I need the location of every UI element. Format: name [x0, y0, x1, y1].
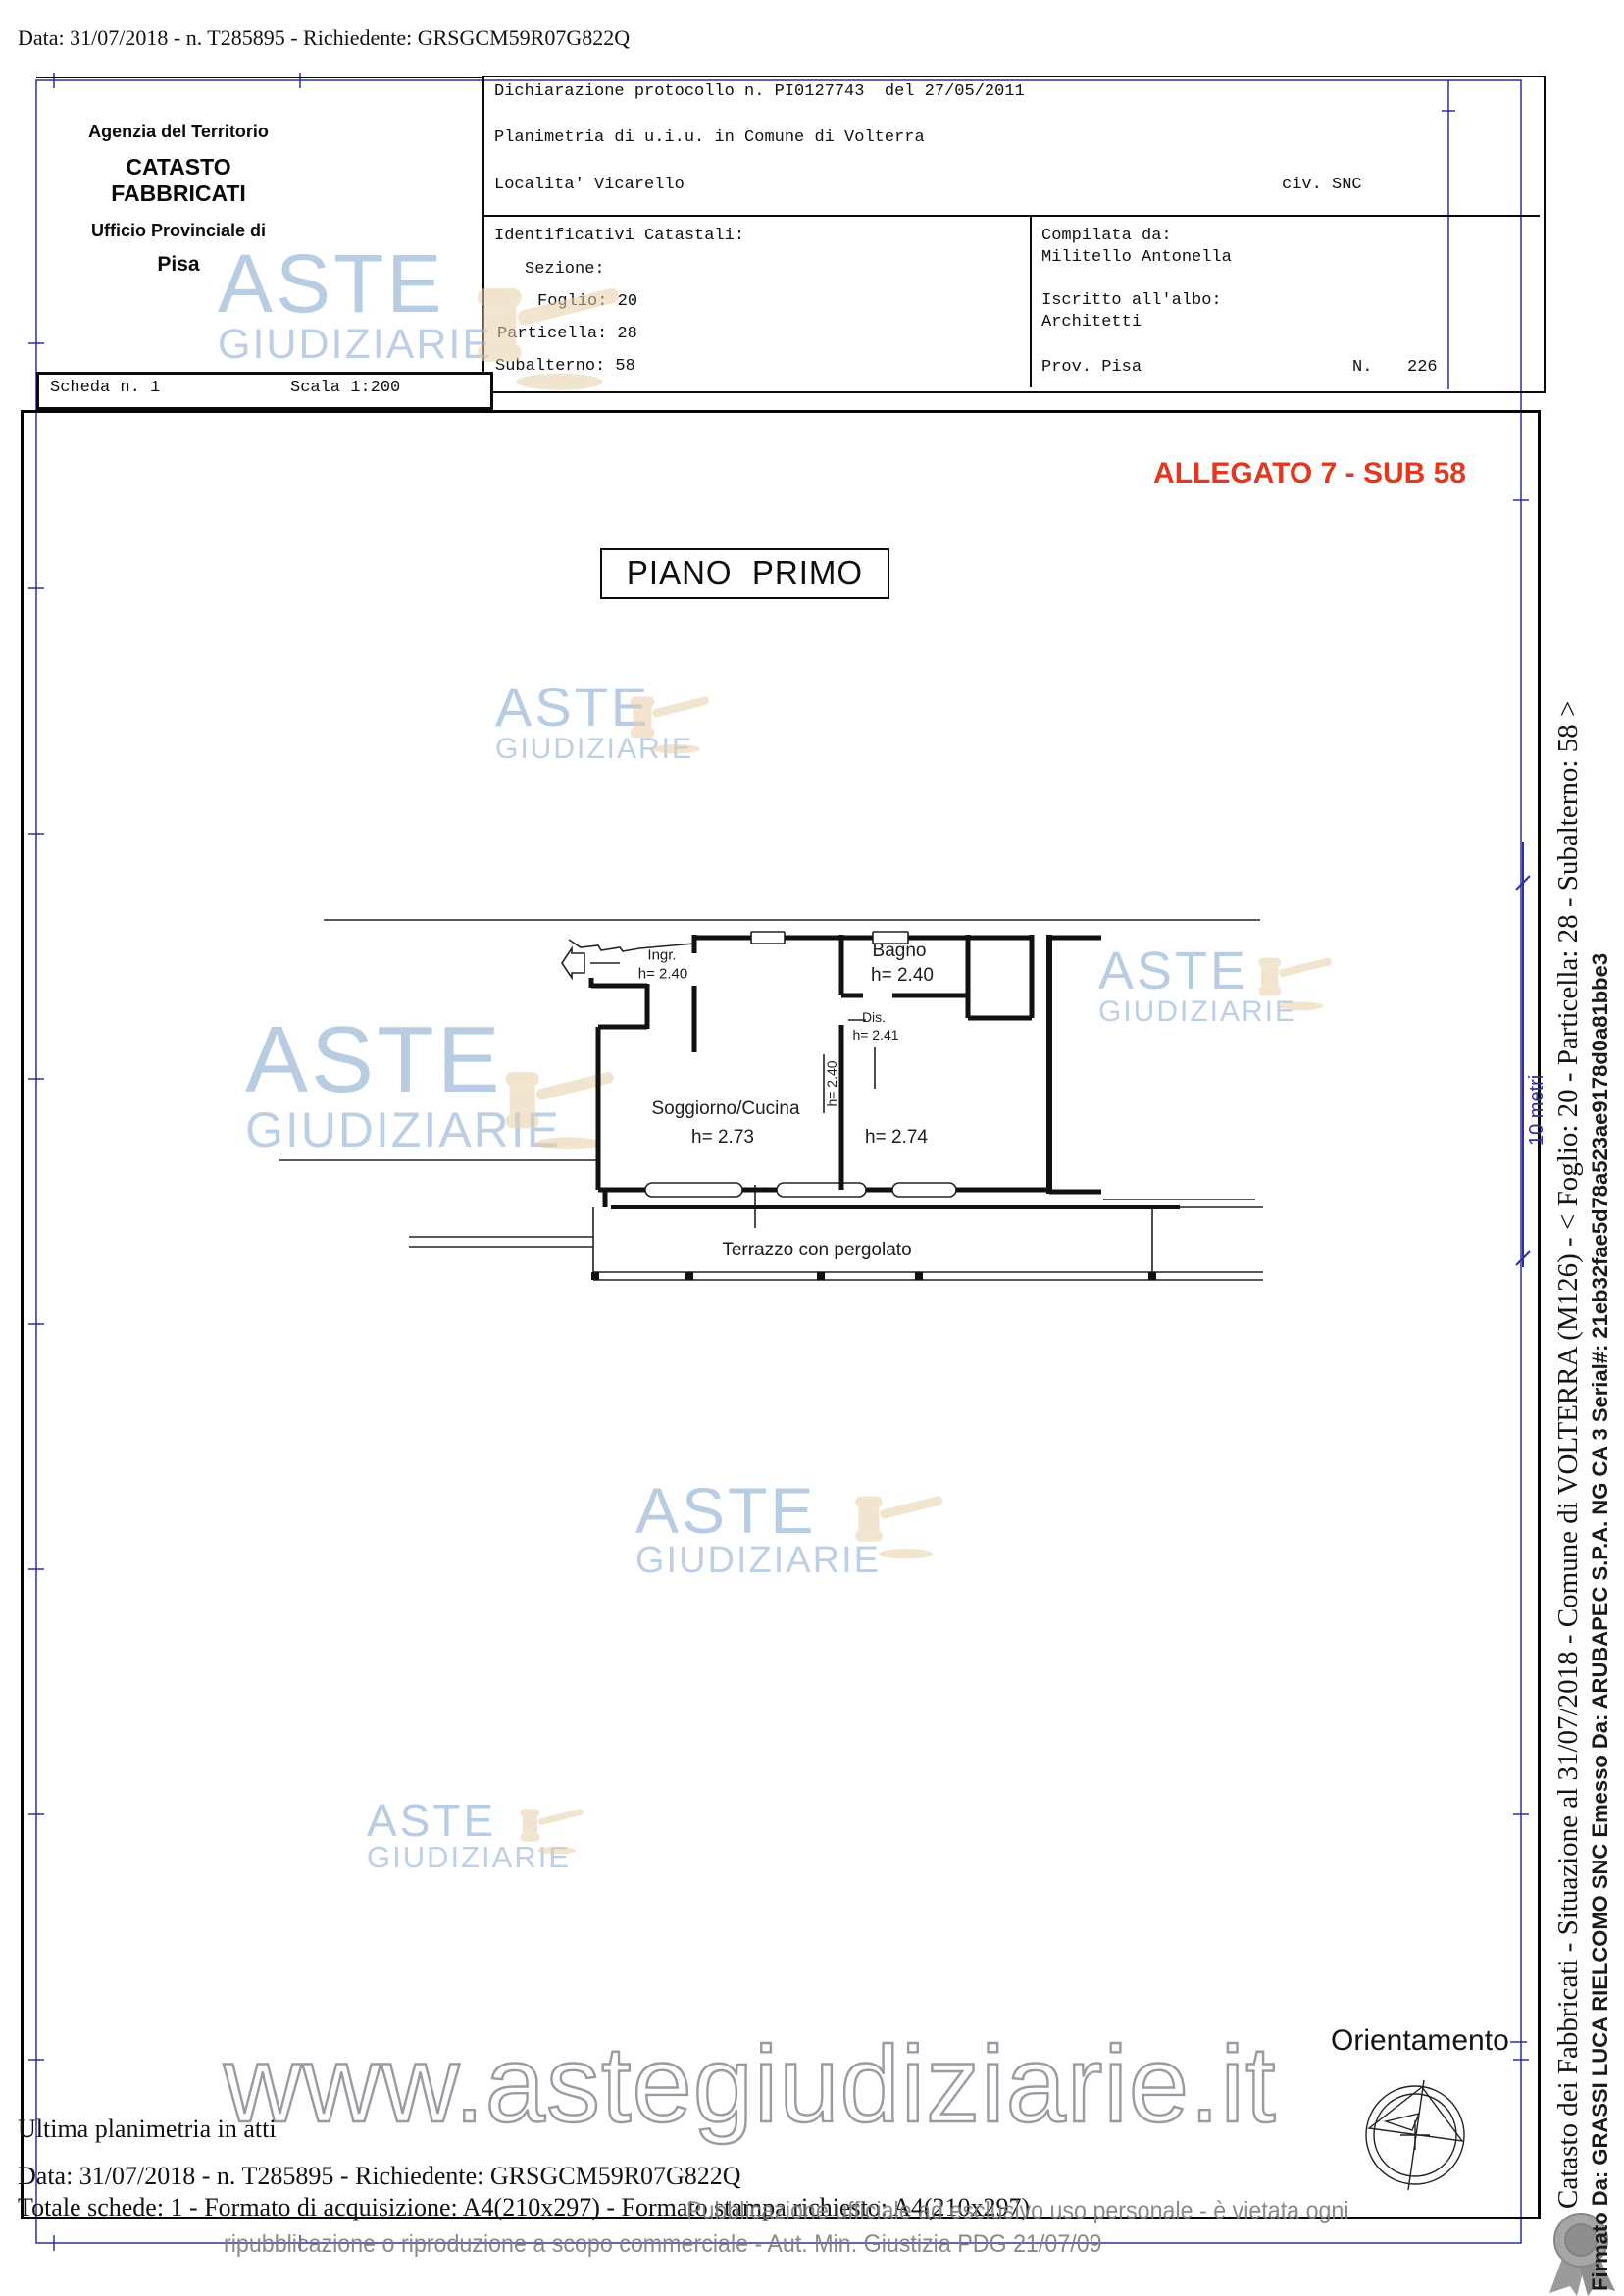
agency-box: Agenzia del Territorio CATASTO FABBRICAT… [36, 77, 482, 373]
scale-bar-label: 10 metri [1526, 1075, 1548, 1146]
room-height-hall: h= 2.40 [824, 1060, 839, 1106]
room-height-ingr: h= 2.40 [638, 966, 687, 983]
compiled-by-label: Compilata da: [1041, 227, 1172, 245]
pergola-posts [591, 1272, 1156, 1280]
agency-line-3: Ufficio Provinciale di [56, 221, 301, 241]
footer-line-1: Ultima planimetria in atti [18, 2115, 277, 2144]
particella-line: Particella: 28 [497, 325, 637, 343]
margin-catasto-line: Catasto dei Fabbricati - Situazione al 3… [1552, 701, 1585, 2209]
entrance-arrow-icon [562, 948, 584, 978]
room-label-dis: Dis. [862, 1009, 886, 1025]
document-page: Data: 31/07/2018 - n. T285895 - Richiede… [0, 0, 1624, 2296]
sezione-line: Sezione: [525, 260, 605, 279]
margin-signature-line: Firmato Da: GRASSI LUCA RIELCOMO SNC Eme… [1588, 953, 1613, 2291]
planimetria-line: Planimetria di u.i.u. in Comune di Volte… [494, 128, 925, 147]
reproduction-notice: ripubblicazione o riproduzione a scopo c… [224, 2230, 1102, 2259]
drawing-frame [21, 410, 1541, 2219]
orientation-label: Orientamento [1331, 2024, 1509, 2058]
allegato-note: ALLEGATO 7 - SUB 58 [1079, 457, 1466, 490]
register-label: Iscritto all'albo: [1041, 291, 1222, 310]
floor-title: PIANO PRIMO [602, 554, 888, 591]
subalterno-line: Subalterno: 58 [495, 357, 635, 376]
albo-number-value: 226 [1407, 358, 1438, 377]
url-watermark: www.astegiudiziarie.it [224, 2022, 1277, 2147]
room-height-bagno: h= 2.40 [871, 965, 934, 987]
agency-line-4: Pisa [56, 253, 301, 277]
locality-line: Localita' Vicarello [494, 176, 685, 194]
agency-line-2: CATASTO FABBRICATI [56, 154, 301, 207]
room-height-camera: h= 2.74 [865, 1127, 928, 1148]
register-value: Architetti [1041, 313, 1142, 332]
identifiers-title: Identificativi Catastali: [494, 227, 744, 245]
footer-line-2: Data: 31/07/2018 - n. T285895 - Richiede… [18, 2162, 741, 2191]
room-label-ingr: Ingr. [647, 947, 676, 964]
sheet-number: Scheda n. 1 [50, 379, 160, 397]
official-use-notice: Pubblicazione ufficiale ad esclusivo uso… [686, 2197, 1349, 2225]
divider-horizontal [484, 215, 1540, 217]
sheet-scale-box: Scheda n. 1 Scala 1:200 [36, 372, 493, 410]
compiled-by-name: Militello Antonella [1041, 248, 1232, 267]
room-label-bagno: Bagno [873, 941, 927, 962]
prov-line: Prov. Pisa [1041, 358, 1142, 377]
page-title: Data: 31/07/2018 - n. T285895 - Richiede… [18, 26, 630, 51]
room-label-soggiorno: Soggiorno/Cucina [651, 1098, 799, 1120]
declaration-box: Dichiarazione protocollo n. PI0127743 de… [482, 76, 1546, 393]
albo-number-label: N. [1352, 358, 1372, 377]
room-label-terrazzo: Terrazzo con pergolato [722, 1240, 911, 1261]
scale-value: Scala 1:200 [290, 379, 400, 397]
room-height-dis: h= 2.41 [852, 1027, 898, 1043]
divider-vertical [1030, 215, 1032, 387]
foglio-line: Foglio: 20 [537, 292, 637, 311]
room-height-soggiorno: h= 2.73 [691, 1127, 754, 1148]
agency-line-1: Agenzia del Territorio [56, 122, 301, 142]
civic-value: civ. SNC [1282, 176, 1362, 194]
floor-title-box: PIANO PRIMO [600, 548, 889, 599]
protocol-line: Dichiarazione protocollo n. PI0127743 de… [494, 82, 1025, 101]
